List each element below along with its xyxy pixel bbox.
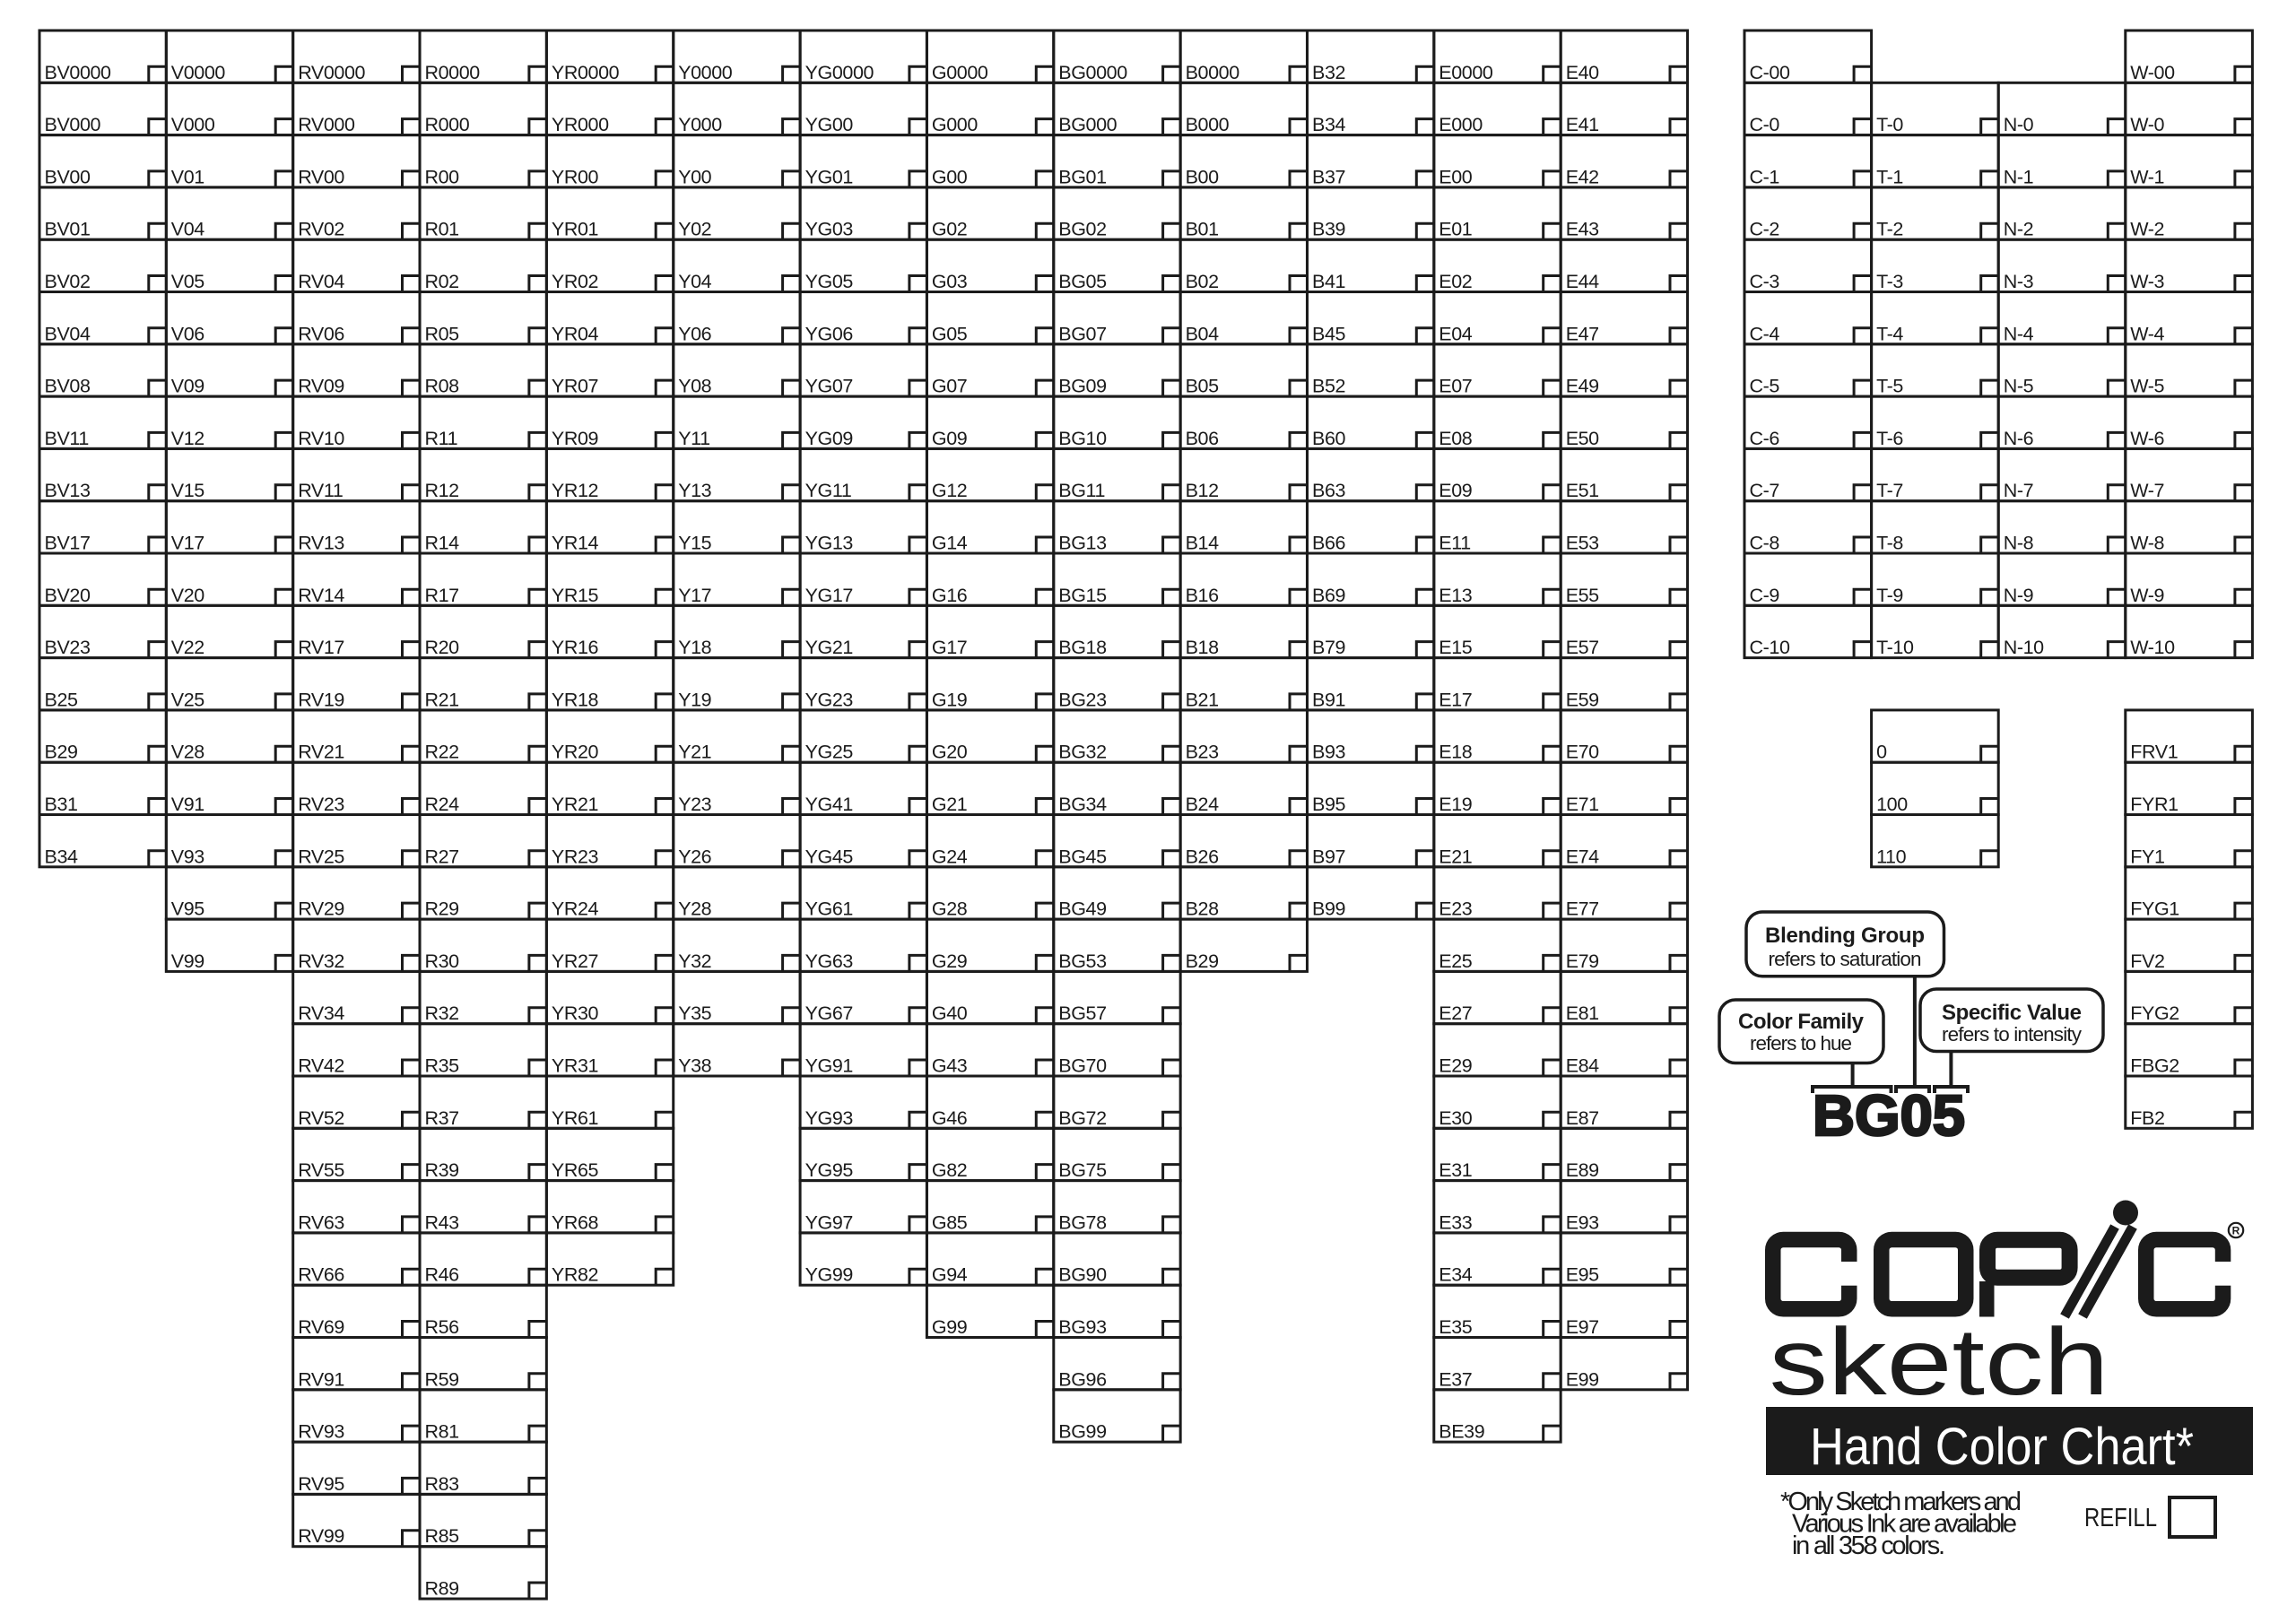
svg-text:B45: B45 — [1312, 323, 1345, 344]
svg-text:R01: R01 — [425, 219, 459, 240]
svg-text:G12: G12 — [932, 480, 967, 501]
svg-text:YG13: YG13 — [805, 533, 854, 554]
svg-text:Hand Color Chart*: Hand Color Chart* — [1810, 1418, 2194, 1476]
svg-text:YG91: YG91 — [805, 1055, 853, 1077]
svg-text:RV34: RV34 — [298, 1002, 344, 1024]
svg-text:T-5: T-5 — [1876, 376, 1903, 397]
svg-text:YG07: YG07 — [805, 376, 853, 397]
svg-text:RV95: RV95 — [298, 1473, 344, 1495]
svg-text:B91: B91 — [1312, 689, 1345, 710]
svg-text:FY1: FY1 — [2130, 846, 2164, 867]
svg-text:BG02: BG02 — [1058, 219, 1106, 240]
svg-text:W-6: W-6 — [2130, 428, 2164, 449]
svg-text:YG25: YG25 — [805, 742, 854, 763]
svg-text:E55: E55 — [1566, 585, 1599, 606]
svg-text:R: R — [2232, 1225, 2240, 1237]
svg-text:BE39: BE39 — [1439, 1421, 1484, 1443]
svg-text:E49: E49 — [1566, 376, 1599, 397]
svg-text:E0000: E0000 — [1439, 62, 1493, 83]
svg-text:R56: R56 — [425, 1316, 460, 1338]
svg-text:V28: V28 — [171, 742, 204, 763]
svg-text:B69: B69 — [1312, 585, 1345, 606]
svg-text:E18: E18 — [1439, 742, 1472, 763]
svg-text:BG70: BG70 — [1058, 1055, 1107, 1077]
svg-text:E79: E79 — [1566, 950, 1599, 972]
svg-text:0: 0 — [1876, 742, 1887, 763]
svg-text:YG01: YG01 — [805, 166, 853, 187]
svg-text:YR82: YR82 — [552, 1264, 598, 1286]
svg-text:C-10: C-10 — [1750, 637, 1790, 658]
svg-text:R12: R12 — [425, 480, 459, 501]
svg-text:E53: E53 — [1566, 533, 1599, 554]
svg-text:R39: R39 — [425, 1159, 459, 1181]
svg-text:YR000: YR000 — [552, 114, 609, 135]
svg-text:C-6: C-6 — [1750, 428, 1780, 449]
svg-text:G02: G02 — [932, 219, 967, 240]
svg-text:B01: B01 — [1186, 219, 1219, 240]
svg-text:V04: V04 — [171, 219, 204, 240]
svg-text:E44: E44 — [1566, 271, 1599, 292]
svg-text:RV42: RV42 — [298, 1055, 344, 1077]
svg-text:BG93: BG93 — [1058, 1316, 1107, 1338]
svg-text:B34: B34 — [45, 846, 78, 867]
svg-text:E40: E40 — [1566, 62, 1599, 83]
svg-text:YG05: YG05 — [805, 271, 854, 292]
svg-text:R14: R14 — [425, 533, 460, 554]
svg-text:W-3: W-3 — [2130, 271, 2164, 292]
svg-text:B52: B52 — [1312, 376, 1345, 397]
svg-text:E08: E08 — [1439, 428, 1472, 449]
svg-text:RV14: RV14 — [298, 585, 344, 606]
svg-text:G40: G40 — [932, 1002, 968, 1024]
svg-text:N-4: N-4 — [2004, 323, 2034, 344]
svg-text:sketch: sketch — [1770, 1309, 2109, 1415]
svg-text:B000: B000 — [1186, 114, 1230, 135]
svg-text:E25: E25 — [1439, 950, 1472, 972]
svg-text:G82: G82 — [932, 1159, 967, 1181]
svg-text:YR18: YR18 — [552, 689, 599, 710]
svg-text:T-8: T-8 — [1876, 533, 1903, 554]
svg-text:G28: G28 — [932, 898, 968, 920]
svg-text:RV11: RV11 — [298, 480, 343, 501]
svg-text:G21: G21 — [932, 794, 967, 815]
svg-text:E81: E81 — [1566, 1002, 1599, 1024]
svg-text:FYG1: FYG1 — [2130, 898, 2179, 920]
svg-text:YG21: YG21 — [805, 637, 853, 658]
svg-text:refers to hue: refers to hue — [1750, 1032, 1852, 1055]
svg-text:C-7: C-7 — [1750, 480, 1779, 501]
svg-text:BV20: BV20 — [45, 585, 91, 606]
svg-text:G09: G09 — [932, 428, 967, 449]
svg-text:YG17: YG17 — [805, 585, 853, 606]
svg-text:YR21: YR21 — [552, 794, 598, 815]
svg-text:BV08: BV08 — [45, 376, 91, 397]
svg-text:N-3: N-3 — [2004, 271, 2034, 292]
svg-text:C-5: C-5 — [1750, 376, 1780, 397]
svg-text:G16: G16 — [932, 585, 968, 606]
svg-text:BG000: BG000 — [1058, 114, 1117, 135]
svg-text:Y17: Y17 — [678, 585, 711, 606]
svg-text:BV04: BV04 — [45, 323, 91, 344]
svg-text:R59: R59 — [425, 1368, 459, 1390]
svg-text:B97: B97 — [1312, 846, 1345, 867]
svg-text:E31: E31 — [1439, 1159, 1472, 1181]
svg-text:E11: E11 — [1439, 533, 1470, 554]
svg-text:Y32: Y32 — [678, 950, 711, 972]
svg-text:E01: E01 — [1439, 219, 1472, 240]
svg-text:C-0: C-0 — [1750, 114, 1780, 135]
svg-text:B04: B04 — [1186, 323, 1219, 344]
svg-text:YG63: YG63 — [805, 950, 854, 972]
svg-text:R11: R11 — [425, 428, 458, 449]
svg-text:YR31: YR31 — [552, 1055, 598, 1077]
svg-text:BG53: BG53 — [1058, 950, 1107, 972]
svg-text:YR24: YR24 — [552, 898, 599, 920]
svg-text:RV25: RV25 — [298, 846, 344, 867]
svg-text:RV0000: RV0000 — [298, 62, 365, 83]
svg-text:110: 110 — [1876, 846, 1907, 867]
svg-text:E04: E04 — [1439, 323, 1472, 344]
svg-text:BG01: BG01 — [1058, 166, 1106, 187]
svg-text:E30: E30 — [1439, 1107, 1472, 1129]
svg-text:G94: G94 — [932, 1264, 968, 1286]
svg-text:E34: E34 — [1439, 1264, 1472, 1286]
svg-text:R17: R17 — [425, 585, 459, 606]
svg-text:RV29: RV29 — [298, 898, 344, 920]
svg-text:V000: V000 — [171, 114, 215, 135]
svg-text:RV69: RV69 — [298, 1316, 344, 1338]
svg-text:YG0000: YG0000 — [805, 62, 874, 83]
svg-text:G03: G03 — [932, 271, 968, 292]
svg-text:YR14: YR14 — [552, 533, 599, 554]
svg-text:YR02: YR02 — [552, 271, 598, 292]
svg-text:E27: E27 — [1439, 1002, 1472, 1024]
svg-text:E29: E29 — [1439, 1055, 1472, 1077]
svg-text:Y0000: Y0000 — [678, 62, 733, 83]
svg-text:G20: G20 — [932, 742, 968, 763]
svg-text:N-6: N-6 — [2004, 428, 2034, 449]
svg-text:E95: E95 — [1566, 1264, 1599, 1286]
svg-text:C-9: C-9 — [1750, 585, 1779, 606]
svg-text:R30: R30 — [425, 950, 460, 972]
svg-text:BG57: BG57 — [1058, 1002, 1106, 1024]
svg-text:T-7: T-7 — [1876, 480, 1903, 501]
svg-text:BG34: BG34 — [1058, 794, 1107, 815]
svg-text:G17: G17 — [932, 637, 967, 658]
svg-text:RV10: RV10 — [298, 428, 344, 449]
svg-text:Y06: Y06 — [678, 323, 711, 344]
svg-text:T-2: T-2 — [1876, 219, 1903, 240]
svg-text:B34: B34 — [1312, 114, 1345, 135]
svg-text:E37: E37 — [1439, 1368, 1472, 1390]
svg-text:RV23: RV23 — [298, 794, 344, 815]
svg-text:E17: E17 — [1439, 689, 1472, 710]
svg-text:T-3: T-3 — [1876, 271, 1903, 292]
svg-text:RV32: RV32 — [298, 950, 344, 972]
svg-text:Y21: Y21 — [678, 742, 711, 763]
svg-text:RV21: RV21 — [298, 742, 344, 763]
svg-text:BG09: BG09 — [1058, 376, 1106, 397]
svg-text:YR20: YR20 — [552, 742, 599, 763]
svg-text:E97: E97 — [1566, 1316, 1599, 1338]
svg-text:BG23: BG23 — [1058, 689, 1107, 710]
svg-text:E59: E59 — [1566, 689, 1599, 710]
svg-text:T-6: T-6 — [1876, 428, 1903, 449]
svg-text:Y000: Y000 — [678, 114, 722, 135]
svg-text:BG99: BG99 — [1058, 1421, 1106, 1443]
svg-text:R27: R27 — [425, 846, 459, 867]
svg-text:FBG2: FBG2 — [2130, 1055, 2179, 1077]
svg-text:R000: R000 — [425, 114, 470, 135]
svg-text:E51: E51 — [1566, 480, 1599, 501]
svg-text:C-00: C-00 — [1750, 62, 1790, 83]
svg-text:R85: R85 — [425, 1525, 460, 1547]
svg-text:YG11: YG11 — [805, 480, 852, 501]
svg-text:refers to intensity: refers to intensity — [1942, 1023, 2083, 1046]
svg-text:B21: B21 — [1186, 689, 1219, 710]
svg-text:E70: E70 — [1566, 742, 1599, 763]
svg-text:V12: V12 — [171, 428, 204, 449]
svg-text:E87: E87 — [1566, 1107, 1599, 1129]
svg-text:100: 100 — [1876, 794, 1908, 815]
svg-text:B41: B41 — [1312, 271, 1345, 292]
svg-text:R37: R37 — [425, 1107, 459, 1129]
svg-text:BG32: BG32 — [1058, 742, 1106, 763]
svg-text:RV55: RV55 — [298, 1159, 344, 1181]
svg-text:N-1: N-1 — [2004, 166, 2033, 187]
svg-text:BV23: BV23 — [45, 637, 91, 658]
svg-text:T-0: T-0 — [1876, 114, 1903, 135]
svg-text:YG41: YG41 — [805, 794, 853, 815]
svg-text:BV000: BV000 — [45, 114, 101, 135]
svg-text:Y00: Y00 — [678, 166, 711, 187]
svg-text:B0000: B0000 — [1186, 62, 1240, 83]
svg-text:R02: R02 — [425, 271, 459, 292]
svg-text:B29: B29 — [1186, 950, 1219, 972]
svg-text:BG10: BG10 — [1058, 428, 1107, 449]
svg-text:V22: V22 — [171, 637, 204, 658]
svg-text:YG67: YG67 — [805, 1002, 853, 1024]
svg-text:B39: B39 — [1312, 219, 1345, 240]
svg-text:T-4: T-4 — [1876, 323, 1903, 344]
svg-text:E47: E47 — [1566, 323, 1599, 344]
svg-text:B02: B02 — [1186, 271, 1219, 292]
svg-text:G29: G29 — [932, 950, 967, 972]
svg-text:B60: B60 — [1312, 428, 1345, 449]
svg-text:YR04: YR04 — [552, 323, 599, 344]
svg-text:R21: R21 — [425, 689, 459, 710]
svg-text:G14: G14 — [932, 533, 968, 554]
svg-text:BG49: BG49 — [1058, 898, 1106, 920]
svg-text:YR27: YR27 — [552, 950, 598, 972]
svg-text:BG13: BG13 — [1058, 533, 1107, 554]
svg-text:BV02: BV02 — [45, 271, 91, 292]
svg-text:W-9: W-9 — [2130, 585, 2164, 606]
svg-text:G43: G43 — [932, 1055, 968, 1077]
svg-text:RV66: RV66 — [298, 1264, 344, 1286]
svg-text:G05: G05 — [932, 323, 968, 344]
svg-text:YR30: YR30 — [552, 1002, 599, 1024]
svg-text:E13: E13 — [1439, 585, 1472, 606]
svg-text:E09: E09 — [1439, 480, 1472, 501]
svg-text:B63: B63 — [1312, 480, 1345, 501]
svg-text:E35: E35 — [1439, 1316, 1472, 1338]
svg-text:BV11: BV11 — [45, 428, 89, 449]
svg-text:Y28: Y28 — [678, 898, 711, 920]
svg-text:E15: E15 — [1439, 637, 1472, 658]
svg-text:V25: V25 — [171, 689, 204, 710]
svg-text:BV00: BV00 — [45, 166, 91, 187]
svg-text:N-0: N-0 — [2004, 114, 2034, 135]
svg-text:REFILL: REFILL — [2084, 1504, 2157, 1532]
svg-text:RV99: RV99 — [298, 1525, 344, 1547]
svg-text:Y38: Y38 — [678, 1055, 711, 1077]
svg-text:YR00: YR00 — [552, 166, 599, 187]
svg-text:RV13: RV13 — [298, 533, 344, 554]
svg-text:BG18: BG18 — [1058, 637, 1107, 658]
svg-text:B26: B26 — [1186, 846, 1219, 867]
svg-text:V93: V93 — [171, 846, 204, 867]
svg-text:FRV1: FRV1 — [2130, 742, 2178, 763]
svg-text:W-10: W-10 — [2130, 637, 2175, 658]
svg-text:BG05: BG05 — [1813, 1083, 1965, 1148]
svg-text:RV17: RV17 — [298, 637, 344, 658]
svg-text:V91: V91 — [171, 794, 204, 815]
svg-text:Y18: Y18 — [678, 637, 711, 658]
svg-text:B14: B14 — [1186, 533, 1219, 554]
svg-text:C-8: C-8 — [1750, 533, 1780, 554]
svg-text:C-1: C-1 — [1750, 166, 1779, 187]
svg-text:R20: R20 — [425, 637, 460, 658]
svg-text:Y19: Y19 — [678, 689, 711, 710]
svg-text:refers to saturation: refers to saturation — [1769, 948, 1922, 970]
svg-text:B12: B12 — [1186, 480, 1219, 501]
svg-text:BG05: BG05 — [1058, 271, 1107, 292]
svg-text:BG78: BG78 — [1058, 1211, 1107, 1233]
svg-text:YG61: YG61 — [805, 898, 853, 920]
svg-text:V15: V15 — [171, 480, 204, 501]
svg-text:E84: E84 — [1566, 1055, 1599, 1077]
svg-text:R32: R32 — [425, 1002, 459, 1024]
svg-text:V0000: V0000 — [171, 62, 226, 83]
svg-text:B66: B66 — [1312, 533, 1345, 554]
svg-text:Color Family: Color Family — [1738, 1010, 1865, 1034]
svg-text:BG11: BG11 — [1058, 480, 1105, 501]
svg-text:G24: G24 — [932, 846, 968, 867]
svg-text:C-4: C-4 — [1750, 323, 1780, 344]
svg-text:Y11: Y11 — [678, 428, 709, 449]
svg-text:BV01: BV01 — [45, 219, 91, 240]
svg-text:E00: E00 — [1439, 166, 1472, 187]
svg-text:YR23: YR23 — [552, 846, 599, 867]
svg-text:G85: G85 — [932, 1211, 968, 1233]
svg-text:V20: V20 — [171, 585, 204, 606]
svg-text:YR15: YR15 — [552, 585, 599, 606]
svg-text:Y13: Y13 — [678, 480, 711, 501]
svg-text:RV52: RV52 — [298, 1107, 344, 1129]
svg-text:N-5: N-5 — [2004, 376, 2034, 397]
svg-text:E99: E99 — [1566, 1368, 1599, 1390]
svg-text:Y15: Y15 — [678, 533, 711, 554]
svg-text:YR65: YR65 — [552, 1159, 599, 1181]
svg-text:BV17: BV17 — [45, 533, 91, 554]
svg-text:BG15: BG15 — [1058, 585, 1107, 606]
svg-text:T-10: T-10 — [1876, 637, 1914, 658]
svg-text:B24: B24 — [1186, 794, 1219, 815]
svg-text:BV13: BV13 — [45, 480, 91, 501]
svg-text:E93: E93 — [1566, 1211, 1599, 1233]
svg-text:E19: E19 — [1439, 794, 1472, 815]
svg-text:BG96: BG96 — [1058, 1368, 1107, 1390]
svg-text:N-8: N-8 — [2004, 533, 2034, 554]
svg-text:R83: R83 — [425, 1473, 460, 1495]
svg-text:Specific Value: Specific Value — [1942, 1001, 2082, 1025]
svg-text:G07: G07 — [932, 376, 967, 397]
svg-text:E74: E74 — [1566, 846, 1599, 867]
svg-text:BG0000: BG0000 — [1058, 62, 1127, 83]
svg-text:RV09: RV09 — [298, 376, 344, 397]
svg-text:BG90: BG90 — [1058, 1264, 1107, 1286]
svg-text:G000: G000 — [932, 114, 978, 135]
svg-text:Y04: Y04 — [678, 271, 711, 292]
svg-text:W-0: W-0 — [2130, 114, 2164, 135]
svg-text:B32: B32 — [1312, 62, 1345, 83]
svg-text:Y08: Y08 — [678, 376, 711, 397]
svg-text:Blending Group: Blending Group — [1765, 924, 1925, 948]
svg-text:V99: V99 — [171, 950, 204, 972]
svg-text:R00: R00 — [425, 166, 460, 187]
svg-text:RV00: RV00 — [298, 166, 344, 187]
svg-text:R22: R22 — [425, 742, 459, 763]
svg-text:B29: B29 — [45, 742, 78, 763]
svg-text:YG06: YG06 — [805, 323, 854, 344]
svg-text:W-4: W-4 — [2130, 323, 2164, 344]
svg-text:G00: G00 — [932, 166, 968, 187]
svg-text:W-5: W-5 — [2130, 376, 2164, 397]
svg-text:B06: B06 — [1186, 428, 1219, 449]
svg-text:BV0000: BV0000 — [45, 62, 112, 83]
svg-text:E000: E000 — [1439, 114, 1483, 135]
svg-text:E41: E41 — [1566, 114, 1599, 135]
svg-text:YR09: YR09 — [552, 428, 598, 449]
svg-text:B99: B99 — [1312, 898, 1345, 920]
svg-text:E77: E77 — [1566, 898, 1599, 920]
svg-text:E57: E57 — [1566, 637, 1599, 658]
svg-text:RV02: RV02 — [298, 219, 344, 240]
svg-text:R43: R43 — [425, 1211, 460, 1233]
svg-text:BG72: BG72 — [1058, 1107, 1106, 1129]
svg-text:C-2: C-2 — [1750, 219, 1779, 240]
svg-text:G0000: G0000 — [932, 62, 988, 83]
svg-text:FYG2: FYG2 — [2130, 1002, 2179, 1024]
svg-text:BG07: BG07 — [1058, 323, 1106, 344]
svg-text:E33: E33 — [1439, 1211, 1472, 1233]
svg-text:G19: G19 — [932, 689, 967, 710]
svg-text:YG97: YG97 — [805, 1211, 853, 1233]
svg-text:V01: V01 — [171, 166, 204, 187]
svg-text:RV06: RV06 — [298, 323, 344, 344]
svg-text:YR07: YR07 — [552, 376, 598, 397]
svg-text:N-9: N-9 — [2004, 585, 2033, 606]
svg-text:V06: V06 — [171, 323, 204, 344]
svg-text:B37: B37 — [1312, 166, 1345, 187]
svg-text:V05: V05 — [171, 271, 204, 292]
svg-text:RV91: RV91 — [298, 1368, 344, 1390]
svg-text:N-7: N-7 — [2004, 480, 2033, 501]
svg-text:BG45: BG45 — [1058, 846, 1107, 867]
svg-text:V17: V17 — [171, 533, 204, 554]
svg-text:YR12: YR12 — [552, 480, 598, 501]
